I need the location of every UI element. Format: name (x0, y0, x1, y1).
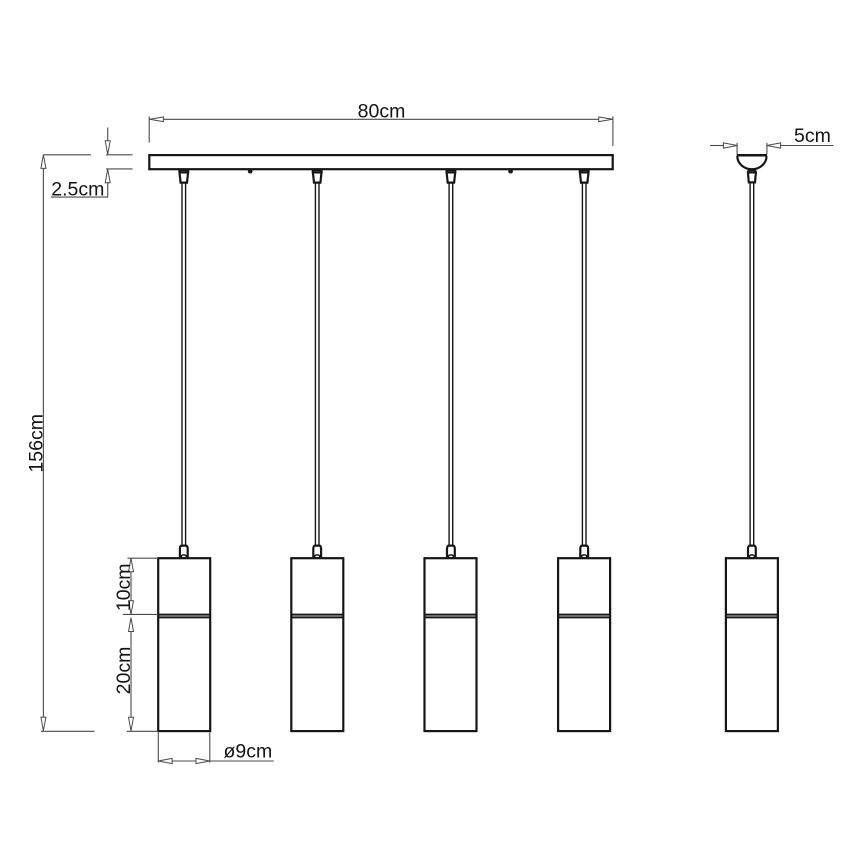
svg-text:20cm: 20cm (113, 647, 135, 695)
svg-text:ø9cm: ø9cm (224, 741, 273, 763)
svg-text:156cm: 156cm (26, 414, 48, 473)
svg-text:2.5cm: 2.5cm (51, 179, 104, 201)
svg-text:80cm: 80cm (358, 101, 406, 123)
svg-text:10cm: 10cm (113, 563, 135, 611)
svg-text:5cm: 5cm (794, 125, 831, 147)
